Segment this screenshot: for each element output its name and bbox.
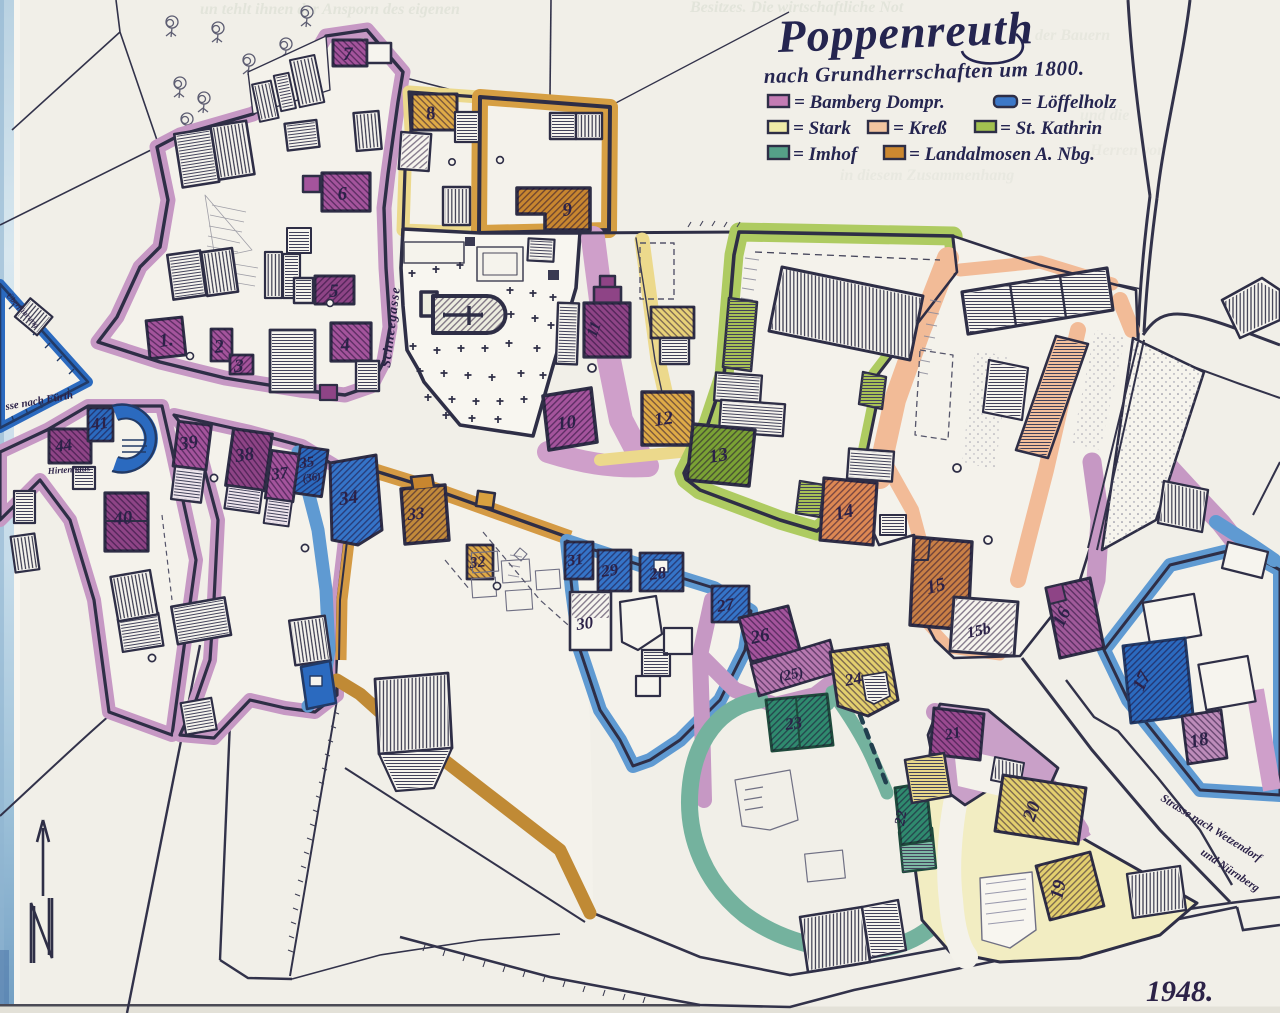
svg-text:= Kreß: = Kreß (893, 118, 947, 139)
svg-text:= Löffelholz: = Löffelholz (1021, 92, 1117, 113)
svg-text:22: 22 (892, 809, 911, 828)
svg-text:= Stark: = Stark (793, 118, 851, 139)
svg-text:44: 44 (53, 435, 73, 456)
svg-text:13: 13 (707, 444, 729, 468)
svg-text:24: 24 (842, 668, 863, 690)
svg-text:= Bamberg Dompr.: = Bamberg Dompr. (794, 92, 945, 113)
svg-text:Poppenreuth: Poppenreuth (776, 2, 1035, 62)
svg-text:23: 23 (783, 713, 804, 734)
svg-text:21: 21 (942, 724, 962, 744)
svg-text:(36): (36) (302, 471, 322, 485)
svg-text:38: 38 (233, 443, 256, 467)
svg-text:35: 35 (297, 454, 316, 472)
svg-text:33: 33 (405, 503, 425, 524)
svg-text:40: 40 (111, 507, 134, 530)
svg-text:29: 29 (599, 560, 620, 581)
svg-text:1948.: 1948. (1146, 975, 1214, 1008)
svg-text:= Landalmosen A. Nbg.: = Landalmosen A. Nbg. (909, 144, 1095, 165)
svg-text:39: 39 (177, 431, 200, 455)
svg-text:un tehlt ihnen der Ansporn des: un tehlt ihnen der Ansporn des eigenen (200, 1, 460, 18)
svg-text:30: 30 (574, 613, 595, 634)
svg-text:28: 28 (647, 563, 668, 584)
svg-text:5: 5 (329, 281, 339, 302)
svg-text:4: 4 (339, 334, 351, 356)
svg-text:1.: 1. (158, 329, 175, 352)
svg-text:7: 7 (343, 44, 354, 65)
svg-text:41: 41 (89, 413, 109, 434)
svg-text:= St. Kathrin: = St. Kathrin (1000, 118, 1102, 139)
svg-text:32: 32 (468, 553, 487, 572)
svg-text:31: 31 (565, 551, 584, 570)
svg-text:der Bauern: der Bauern (1035, 27, 1110, 44)
svg-text:34: 34 (337, 487, 360, 511)
svg-text:10: 10 (556, 411, 578, 435)
svg-text:in diesem Zusammenhang: in diesem Zusammenhang (840, 167, 1014, 184)
svg-text:= Imhof: = Imhof (793, 144, 859, 165)
svg-text:3: 3 (233, 356, 244, 377)
svg-text:12: 12 (653, 407, 675, 431)
svg-text:Herren von: Herren von (1089, 142, 1166, 159)
